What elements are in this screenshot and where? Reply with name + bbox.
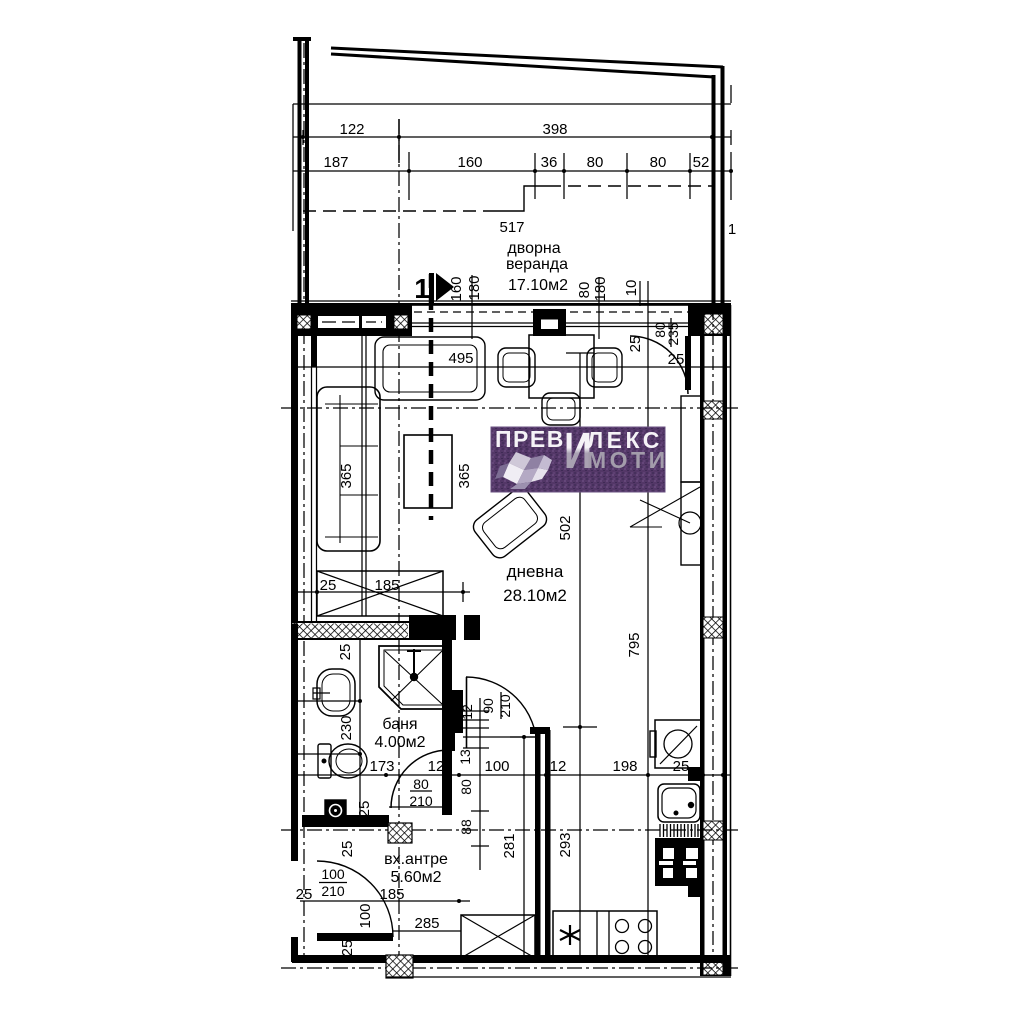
- svg-text:25: 25: [339, 940, 356, 957]
- svg-text:495: 495: [448, 350, 473, 367]
- svg-text:МОТИ: МОТИ: [587, 447, 669, 473]
- svg-text:210: 210: [497, 694, 513, 718]
- svg-text:1: 1: [728, 221, 736, 238]
- svg-text:185: 185: [379, 886, 404, 903]
- svg-text:25: 25: [339, 841, 356, 858]
- svg-text:80: 80: [576, 282, 593, 299]
- svg-text:235: 235: [665, 322, 681, 346]
- svg-text:210: 210: [409, 793, 433, 809]
- svg-text:185: 185: [374, 577, 399, 594]
- svg-text:281: 281: [501, 833, 518, 858]
- svg-text:210: 210: [321, 883, 345, 899]
- svg-text:25: 25: [673, 758, 690, 775]
- svg-text:198: 198: [612, 758, 637, 775]
- svg-text:517: 517: [499, 219, 524, 236]
- svg-text:180: 180: [466, 275, 483, 300]
- svg-text:122: 122: [339, 121, 364, 138]
- svg-text:баня: баня: [382, 716, 417, 733]
- svg-text:90: 90: [480, 698, 496, 714]
- svg-text:365: 365: [338, 463, 355, 488]
- svg-text:12: 12: [459, 704, 475, 720]
- svg-text:80: 80: [650, 154, 667, 171]
- svg-text:12: 12: [550, 758, 567, 775]
- svg-text:36: 36: [541, 154, 558, 171]
- svg-text:веранда: веранда: [506, 256, 568, 273]
- svg-text:173: 173: [369, 758, 394, 775]
- svg-text:100: 100: [484, 758, 509, 775]
- svg-text:795: 795: [626, 632, 643, 657]
- svg-text:17.10м2: 17.10м2: [508, 277, 568, 294]
- svg-text:80: 80: [413, 776, 429, 792]
- svg-text:ПРЕВ: ПРЕВ: [495, 426, 565, 452]
- svg-text:88: 88: [458, 819, 474, 835]
- svg-text:13: 13: [457, 749, 473, 765]
- svg-text:дворна: дворна: [507, 240, 560, 257]
- svg-text:285: 285: [414, 915, 439, 932]
- svg-text:вх.антре: вх.антре: [384, 851, 448, 868]
- svg-text:5.60м2: 5.60м2: [390, 869, 441, 886]
- svg-text:25: 25: [337, 644, 354, 661]
- svg-text:дневна: дневна: [507, 562, 564, 581]
- svg-text:25: 25: [320, 577, 337, 594]
- svg-text:80: 80: [458, 779, 474, 795]
- svg-text:52: 52: [693, 154, 710, 171]
- svg-text:180: 180: [592, 276, 609, 301]
- svg-text:293: 293: [557, 832, 574, 857]
- svg-text:160: 160: [457, 154, 482, 171]
- svg-text:1: 1: [414, 273, 430, 304]
- svg-text:100: 100: [357, 903, 374, 928]
- svg-text:25: 25: [356, 801, 373, 818]
- svg-text:25: 25: [296, 886, 313, 903]
- svg-text:10: 10: [623, 280, 640, 297]
- svg-text:80: 80: [587, 154, 604, 171]
- svg-text:502: 502: [557, 515, 574, 540]
- svg-text:4.00м2: 4.00м2: [374, 734, 425, 751]
- svg-text:365: 365: [456, 463, 473, 488]
- svg-text:12: 12: [428, 758, 445, 775]
- svg-text:100: 100: [321, 866, 345, 882]
- svg-text:230: 230: [338, 715, 355, 740]
- svg-text:398: 398: [542, 121, 567, 138]
- svg-text:25: 25: [668, 351, 685, 368]
- svg-text:187: 187: [323, 154, 348, 171]
- svg-text:28.10м2: 28.10м2: [503, 586, 567, 605]
- svg-text:25: 25: [627, 336, 644, 353]
